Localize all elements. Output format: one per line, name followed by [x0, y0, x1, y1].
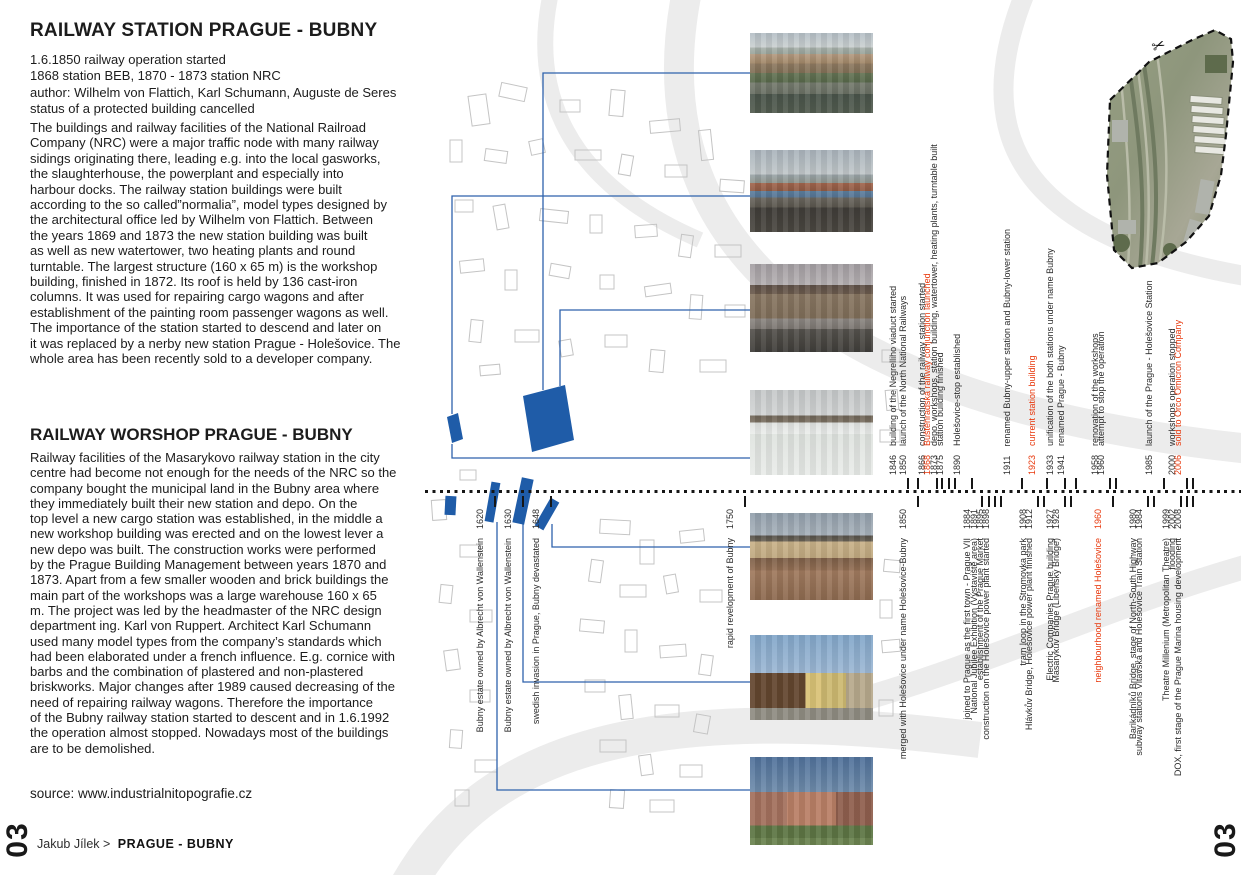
timeline-axis: [425, 490, 1241, 493]
timeline-entry-bot-1928: Masarykův Bridge (Libeňský Bridge) 1928: [1050, 509, 1063, 841]
timeline-entry-top-1890: 1890 Holešovice-stop established: [951, 55, 964, 475]
footer-project-title: PRAGUE - BUBNY: [118, 837, 234, 851]
timeline-tick-bot: [1000, 496, 1002, 507]
timeline-entry-top-1960: 1960 attempt to stop the operation: [1095, 55, 1108, 475]
timeline-tick-bot: [522, 496, 524, 507]
timeline-tick-top: [948, 478, 950, 489]
timeline-tick-top: [941, 478, 943, 489]
timeline-tick-bot: [1043, 496, 1045, 507]
timeline-tick-top: [1075, 478, 1077, 489]
timeline-entry-bot-2008: DOX, first stage of the Prague Marina ho…: [1172, 509, 1185, 841]
timeline-tick-top: [1192, 478, 1194, 489]
timeline-entry-bot-1620: Bubny estate owned by Albrecht von Walle…: [474, 509, 487, 841]
timeline-entry-bot-1912: Hlávkův Bridge, Holešovice power plant f…: [1023, 509, 1036, 841]
timeline-tick-bot: [1186, 496, 1188, 507]
timeline-entry-top-1911: 1911 renamed Bubny-upper station and Bub…: [1001, 55, 1014, 475]
timeline-tick-top: [1109, 478, 1111, 489]
timeline-tick-top: [1163, 478, 1165, 489]
timeline-entry-top-1850: 1850 launch of the North National Railwa…: [897, 55, 910, 475]
photo-winter-warehouse: [750, 390, 873, 475]
timeline-entry-top-1875: 1875 station building finished: [934, 55, 947, 475]
source-link-text: source: www.industrialnitopografie.cz: [30, 786, 252, 801]
timeline-tick-bot: [1112, 496, 1114, 507]
timeline-tick-bot: [988, 496, 990, 507]
timeline-tick-bot: [994, 496, 996, 507]
timeline-tick-top: [1021, 478, 1023, 489]
photo-railway-depot: [750, 150, 873, 232]
station-body-text: The buildings and railway facilities of …: [30, 120, 462, 367]
timeline-tick-top: [1186, 478, 1188, 489]
station-section-title: RAILWAY STATION PRAGUE - BUBNY: [30, 20, 377, 42]
footer-author: Jakub Jílek >: [37, 837, 110, 851]
footer-credit: Jakub Jílek > PRAGUE - BUBNY: [37, 837, 234, 851]
workshop-section-title: RAILWAY WORSHOP PRAGUE - BUBNY: [30, 425, 353, 445]
timeline-entry-top-1985: 1985 launch of the Prague - Holešovice S…: [1143, 55, 1156, 475]
workshop-body-text: Railway facilities of the Masarykovo rai…: [30, 450, 470, 756]
timeline-tick-top: [1046, 478, 1048, 489]
page-number-right: 03: [1204, 810, 1241, 870]
timeline-tick-bot: [1064, 496, 1066, 507]
timeline-entry-bot-1850: merged with Holešovice under name Holešo…: [897, 509, 910, 841]
timeline-entry-top-1941: 1941 renamed Prague - Bubny: [1055, 55, 1068, 475]
timeline-tick-bot: [1070, 496, 1072, 507]
photo-red-workshop: [750, 757, 873, 845]
station-meta-facts: 1.6.1850 railway operation started 1868 …: [30, 52, 396, 118]
timeline-entry-bot-1648: swedish invasion in Prague, Bubny devast…: [530, 509, 543, 841]
photo-station-building: [750, 264, 873, 352]
timeline-tick-top: [954, 478, 956, 489]
timeline-tick-bot: [494, 496, 496, 507]
timeline-tick-bot: [744, 496, 746, 507]
timeline-tick-top: [936, 478, 938, 489]
timeline-tick-bot: [1192, 496, 1194, 507]
timeline-tick-top: [1064, 478, 1066, 489]
timeline-tick-top: [907, 478, 909, 489]
photo-city-panorama: [750, 33, 873, 113]
timeline-tick-top: [917, 478, 919, 489]
photo-barn-and-house: [750, 635, 873, 720]
timeline-tick-bot: [917, 496, 919, 507]
timeline-entry-bot-1630: Bubny estate owned by Albrecht von Walle…: [502, 509, 515, 841]
timeline-entry-bot-1984: subway stations Vltavská and Holešovice …: [1133, 509, 1146, 841]
timeline-entry-top-2006: 2006 sold to Orco Omicron Company: [1172, 55, 1185, 475]
timeline-tick-bot: [1153, 496, 1155, 507]
timeline-entry-bot-1750: rapid revelopment of Bubny 1750: [724, 509, 737, 841]
timeline-entry-bot-1960: neighbourhood renamed Holešovice 1960: [1092, 509, 1105, 841]
timeline-tick-bot: [1037, 496, 1039, 507]
timeline-entry-bot-1898: construction on the Holešovice power pla…: [980, 509, 993, 841]
page-number-left: 03: [0, 810, 40, 870]
timeline-tick-bot: [1180, 496, 1182, 507]
timeline-tick-top: [971, 478, 973, 489]
timeline-entry-top-1923: 1923 current station building: [1026, 55, 1039, 475]
timeline-tick-top: [1115, 478, 1117, 489]
timeline-tick-bot: [1147, 496, 1149, 507]
presentation-board: ✂ RAILWAY STATION PRAGUE - BUBNY 1.6.185…: [0, 0, 1241, 875]
timeline-tick-bot: [550, 496, 552, 507]
timeline-tick-bot: [981, 496, 983, 507]
photo-depot-rubble: [750, 513, 873, 600]
